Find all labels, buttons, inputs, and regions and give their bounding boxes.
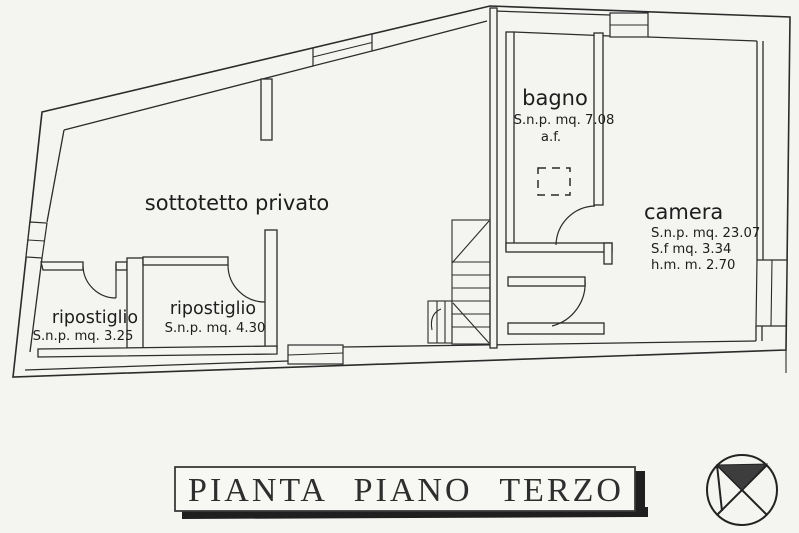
inner-bottom-right xyxy=(343,341,756,347)
wall-ripostiglio-left-top-b xyxy=(116,262,127,270)
window-right xyxy=(756,260,787,326)
title-banner: PIANTA PIANO TERZO xyxy=(175,467,648,519)
ripostiglio-right-label: ripostiglio xyxy=(170,299,256,319)
inner-top-second xyxy=(494,11,610,15)
window-left xyxy=(26,222,47,258)
camera-height: h.m. m. 2.70 xyxy=(651,258,735,273)
stairs-walk-line xyxy=(431,309,441,330)
doors xyxy=(83,206,595,326)
wall-sottotetto-right xyxy=(490,8,497,348)
wall-ripostiglio-right-top xyxy=(143,257,228,265)
stairs-main-flight xyxy=(452,220,490,344)
stairs-diagonal-lower xyxy=(453,303,489,343)
camera-surface: S.f mq. 3.34 xyxy=(651,242,731,257)
door-arc-bagno xyxy=(556,206,595,245)
skylight-dashed-square xyxy=(538,168,570,195)
door-ripostiglio-left xyxy=(83,264,116,298)
door-leaf-landing xyxy=(508,277,585,286)
wall-bagno-left xyxy=(506,32,514,250)
window-top-sloped xyxy=(313,34,372,66)
door-arc-ripostiglio-right xyxy=(228,265,265,302)
bagno-area: S.n.p. mq. 7.08 xyxy=(514,113,615,128)
ripostiglio-right-area: S.n.p. mq. 4.30 xyxy=(165,321,266,336)
wall-ripostiglio-right-side xyxy=(265,230,277,349)
plan-title: PIANTA PIANO TERZO xyxy=(188,472,624,509)
floorplan-scan-page: sottotetto privato bagno S.n.p. mq. 7.08… xyxy=(0,0,799,533)
ripostiglio-left-label: ripostiglio xyxy=(52,308,138,328)
wall-bagno-bottom xyxy=(506,243,612,252)
ripostiglio-left-area: S.n.p. mq. 3.25 xyxy=(33,329,134,344)
window-top xyxy=(610,13,648,37)
window-bottom xyxy=(288,345,343,364)
inner-top-sloped-b xyxy=(372,21,487,51)
banner-shadow-right xyxy=(635,471,645,513)
stairs xyxy=(428,220,490,344)
floorplan-drawing: sottotetto privato bagno S.n.p. mq. 7.08… xyxy=(0,0,799,533)
inner-left-a xyxy=(47,130,64,222)
wall-ripostiglio-bottom xyxy=(38,346,277,357)
camera-area: S.n.p. mq. 23.07 xyxy=(651,226,760,241)
stairs-diagonal-upper xyxy=(452,221,489,263)
bagno-label: bagno xyxy=(522,86,588,110)
bagno-note: a.f. xyxy=(541,130,561,145)
door-arc-landing xyxy=(552,280,585,326)
wall-ripostiglio-left-top-a xyxy=(41,262,83,270)
sottotetto-label: sottotetto privato xyxy=(145,191,329,215)
camera-label: camera xyxy=(644,200,723,224)
wall-stub-top xyxy=(261,79,272,140)
inner-top-camera xyxy=(648,37,757,41)
wall-bagno-bottom-cap xyxy=(604,243,612,264)
compass-icon xyxy=(707,455,777,525)
